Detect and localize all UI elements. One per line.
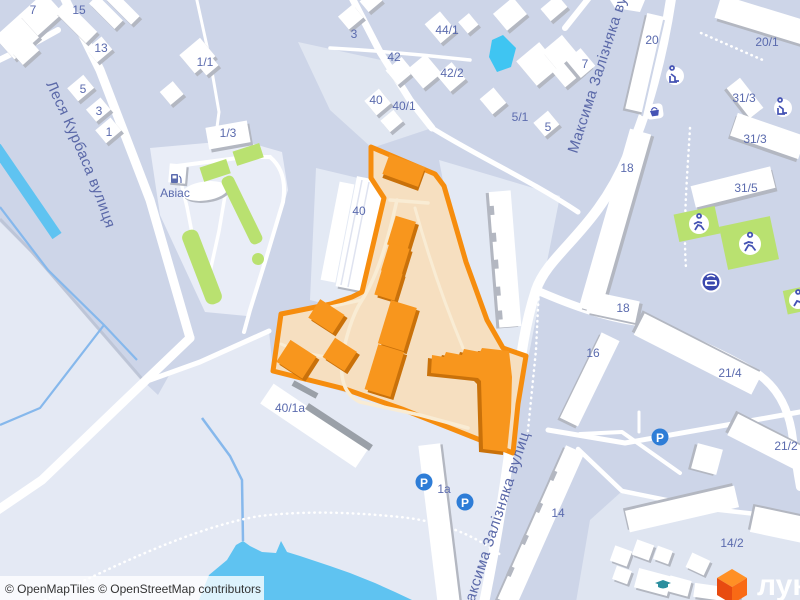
svg-text:P: P xyxy=(461,496,469,510)
svg-text:5/1: 5/1 xyxy=(512,110,529,124)
svg-text:7: 7 xyxy=(30,3,37,17)
svg-text:14/2: 14/2 xyxy=(720,536,744,550)
svg-text:42/2: 42/2 xyxy=(440,66,464,80)
svg-text:18: 18 xyxy=(616,301,630,315)
svg-text:21/2: 21/2 xyxy=(774,439,798,453)
svg-text:P: P xyxy=(656,431,664,445)
svg-text:15: 15 xyxy=(72,3,86,17)
svg-text:3: 3 xyxy=(96,104,103,118)
svg-text:1a: 1a xyxy=(437,482,451,496)
svg-text:21/4: 21/4 xyxy=(718,366,742,380)
svg-text:P: P xyxy=(420,476,428,490)
svg-text:44/1: 44/1 xyxy=(435,23,459,37)
svg-text:40: 40 xyxy=(352,204,366,218)
svg-text:5: 5 xyxy=(545,120,552,134)
svg-text:14: 14 xyxy=(551,506,565,520)
svg-text:13: 13 xyxy=(94,41,108,55)
svg-text:3: 3 xyxy=(351,27,358,41)
svg-text:© OpenMapTiles © OpenStreetMap: © OpenMapTiles © OpenStreetMap contribut… xyxy=(5,582,261,596)
svg-text:1/1: 1/1 xyxy=(197,55,214,69)
svg-text:18: 18 xyxy=(620,161,634,175)
svg-text:40/1: 40/1 xyxy=(392,99,416,113)
svg-text:5: 5 xyxy=(80,82,87,96)
svg-text:1: 1 xyxy=(106,125,113,139)
svg-text:20: 20 xyxy=(645,33,659,47)
svg-text:20/1: 20/1 xyxy=(755,35,779,49)
svg-text:40/1a: 40/1a xyxy=(275,401,305,415)
svg-text:31/3: 31/3 xyxy=(743,132,767,146)
svg-text:7: 7 xyxy=(582,57,589,71)
svg-text:31/5: 31/5 xyxy=(734,181,758,195)
svg-text:Авіас: Авіас xyxy=(160,186,190,200)
svg-text:лун: лун xyxy=(757,569,800,600)
svg-text:40: 40 xyxy=(369,93,383,107)
svg-text:1/3: 1/3 xyxy=(220,126,237,140)
svg-text:42: 42 xyxy=(387,50,401,64)
svg-text:16: 16 xyxy=(586,346,600,360)
svg-text:31/3: 31/3 xyxy=(732,91,756,105)
